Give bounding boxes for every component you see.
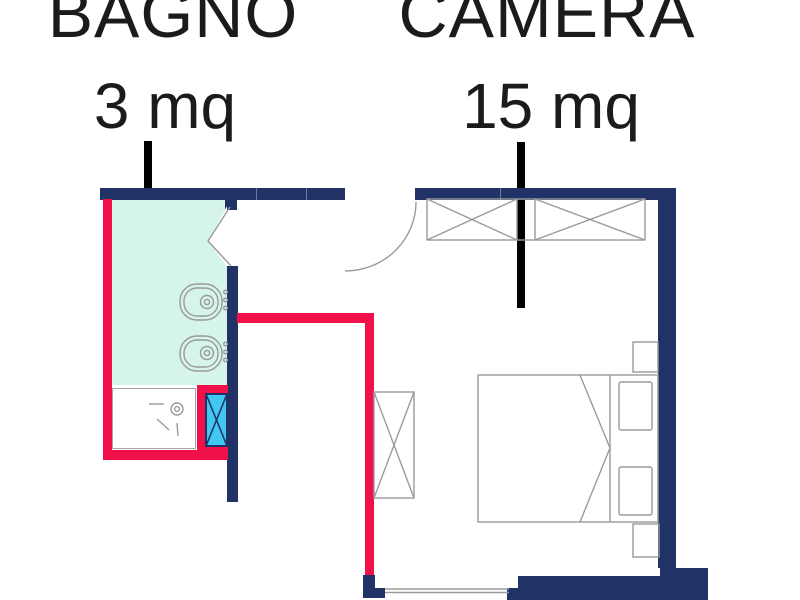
wall-top-right	[415, 188, 676, 200]
bathroom-label: BAGNO	[48, 0, 299, 48]
wall-bedroom-horizontal-red	[237, 313, 374, 323]
floor-plan: BAGNO 3 mq CAMERA 15 mq	[0, 0, 800, 600]
wardrobe-top	[427, 199, 645, 240]
window-symbol	[385, 589, 509, 593]
pillow	[619, 467, 652, 515]
bed	[478, 375, 658, 522]
wall-bottom-step	[507, 588, 518, 600]
wall-bottom-main	[518, 576, 660, 600]
wall-bedroom-left-red	[365, 313, 374, 575]
bedroom-label: CAMERA	[399, 0, 696, 48]
wall-joint	[500, 188, 501, 200]
shower-tray	[112, 388, 196, 449]
bathroom-area-label: 3 mq	[94, 74, 236, 138]
wall-bottom-left-corner	[363, 575, 375, 598]
wall-joint	[306, 188, 307, 200]
bathroom-floor	[112, 199, 227, 385]
door-arc	[345, 202, 416, 271]
bathroom-door-jamb	[225, 198, 237, 210]
wall-right	[658, 188, 676, 568]
nightstand-top	[633, 342, 658, 372]
bedroom-pointer-line	[517, 142, 525, 308]
pillow	[619, 382, 652, 430]
nightstand-bottom	[633, 524, 659, 557]
shower-glass-panel	[205, 393, 228, 447]
wall-bottom-left-foot	[375, 588, 385, 598]
wall-bathroom-bottom-red	[103, 450, 228, 460]
wardrobe-left	[374, 392, 414, 498]
bedroom-area-label: 15 mq	[462, 74, 640, 138]
wall-joint	[256, 188, 257, 200]
wall-bathroom-right	[227, 266, 238, 502]
wall-top-left	[100, 188, 345, 200]
wall-bottom-right-corner	[660, 568, 708, 600]
wall-bathroom-left-red	[103, 199, 112, 460]
